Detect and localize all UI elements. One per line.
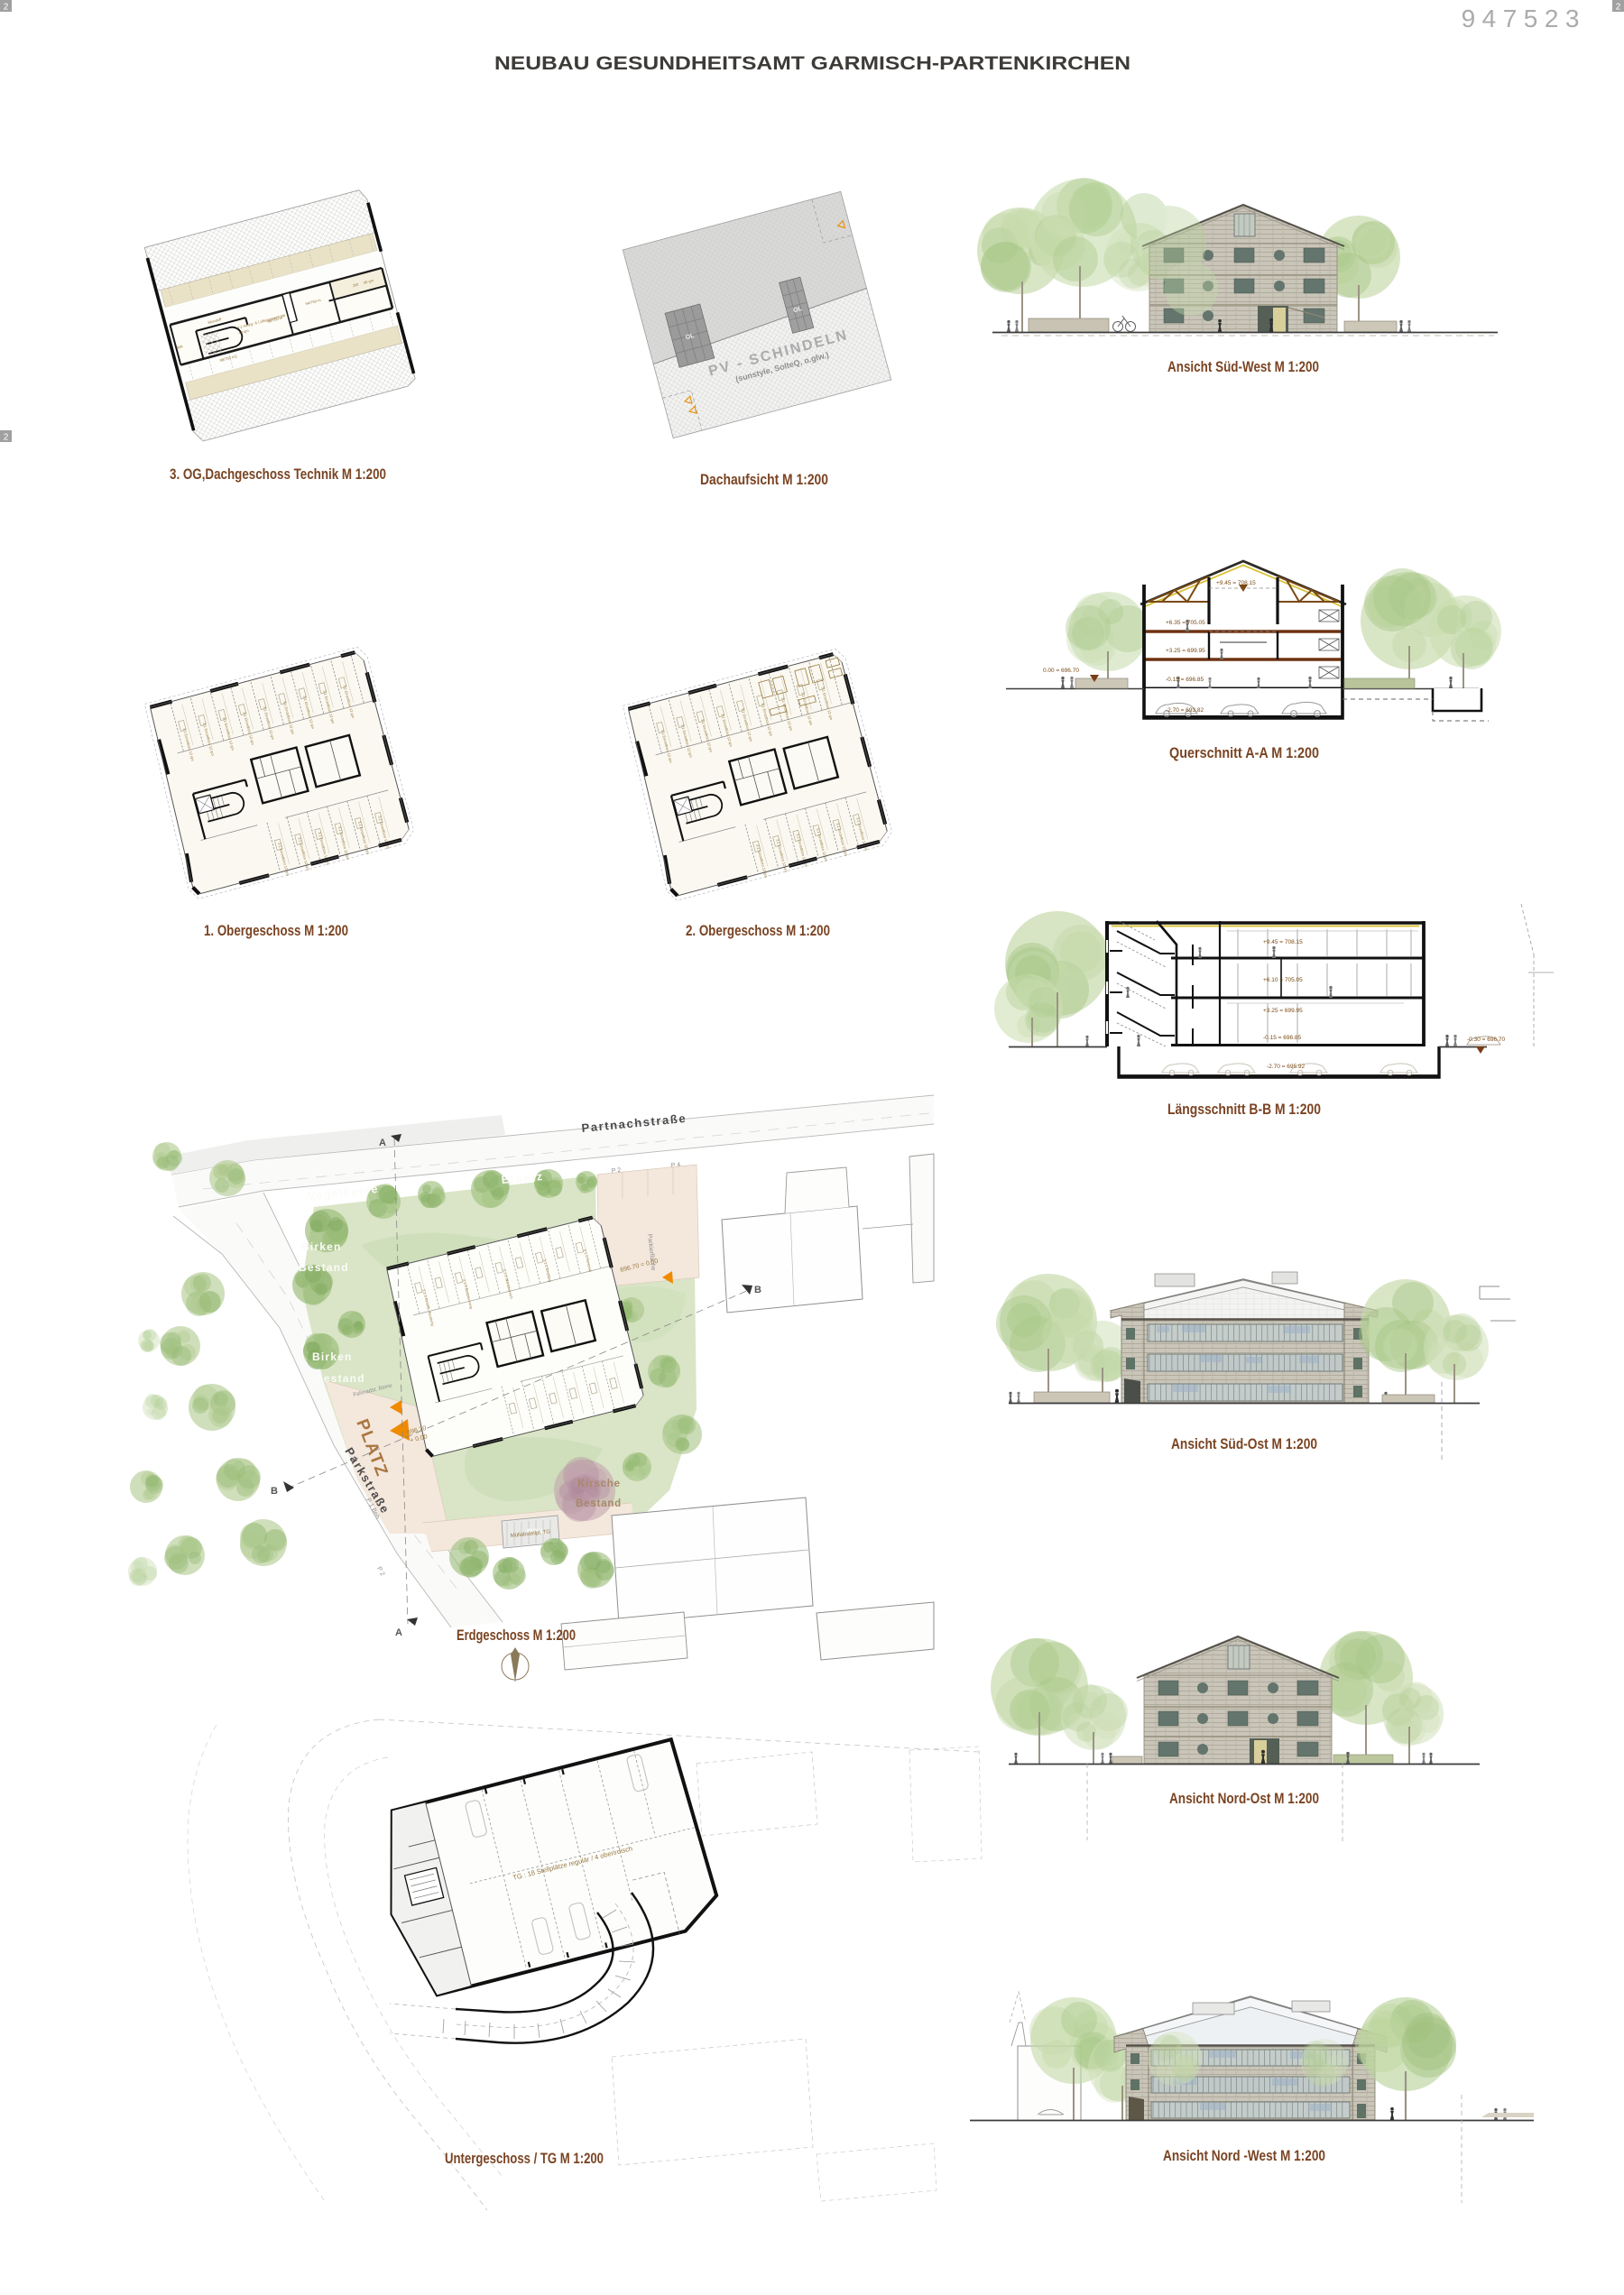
svg-text:1. Obergeschoss M 1:200: 1. Obergeschoss M 1:200 [204,923,348,939]
svg-text:Dachaufsicht M 1:200: Dachaufsicht M 1:200 [700,472,828,488]
svg-text:Ansicht Nord-Ost M 1:200: Ansicht Nord-Ost M 1:200 [1169,1791,1319,1807]
svg-text:Birken: Birken [301,1240,342,1253]
svg-text:-2.70 = 693.82: -2.70 = 693.82 [1166,707,1204,714]
svg-text:2: 2 [4,433,9,443]
svg-text:-0.30 = 696.70: -0.30 = 696.70 [1467,1037,1505,1043]
svg-text:+6.35 = 705.05: +6.35 = 705.05 [1166,620,1205,626]
svg-text:2: 2 [4,3,9,13]
svg-text:Bestand: Bestand [315,1372,365,1385]
svg-text:Bestand: Bestand [299,1261,349,1274]
svg-text:-0.15 = 696.85: -0.15 = 696.85 [1263,1035,1301,1041]
svg-text:0.00 = 696.70: 0.00 = 696.70 [1043,668,1079,674]
svg-text:Ansicht Süd-Ost M 1:200: Ansicht Süd-Ost M 1:200 [1171,1436,1317,1452]
svg-text:+3.25 = 699.95: +3.25 = 699.95 [1166,648,1205,654]
svg-text:Birken: Birken [312,1350,353,1363]
svg-text:P 2: P 2 [611,1167,621,1175]
svg-text:+9.45 = 708.15: +9.45 = 708.15 [1263,939,1303,945]
svg-text:947523: 947523 [1462,5,1586,32]
svg-text:Erdgeschoss M 1:200: Erdgeschoss M 1:200 [457,1627,576,1644]
svg-text:Längsschnitt B-B M 1:200: Längsschnitt B-B M 1:200 [1167,1101,1321,1118]
svg-text:A: A [395,1627,402,1638]
svg-text:Untergeschoss / TG M 1:200: Untergeschoss / TG M 1:200 [445,2151,604,2167]
svg-text:Kirsche: Kirsche [577,1479,621,1489]
svg-text:3. OG,Dachgeschoss Technik M 1: 3. OG,Dachgeschoss Technik M 1:200 [170,466,386,483]
svg-text:2. Obergeschoss M 1:200: 2. Obergeschoss M 1:200 [686,923,830,939]
svg-text:2: 2 [1616,3,1621,13]
svg-text:Querschnitt A-A M 1:200: Querschnitt A-A M 1:200 [1169,745,1319,761]
svg-text:-0.15 = 696.85: -0.15 = 696.85 [1166,677,1204,683]
svg-text:Bestand: Bestand [576,1498,622,1509]
svg-text:B: B [754,1285,761,1295]
svg-text:-2.70 = 695.92: -2.70 = 695.92 [1267,1064,1305,1070]
svg-text:Ansicht Süd-West M 1:200: Ansicht Süd-West M 1:200 [1167,359,1319,375]
svg-text:B: B [271,1486,278,1497]
svg-text:+3.25 = 699.95: +3.25 = 699.95 [1263,1008,1303,1014]
svg-text:A: A [379,1138,386,1148]
svg-text:+6.10 = 705.05: +6.10 = 705.05 [1263,977,1303,983]
svg-text:+9.45 = 708.15: +9.45 = 708.15 [1216,580,1256,586]
svg-text:NEUBAU GESUNDHEITSAMT GARMISCH: NEUBAU GESUNDHEITSAMT GARMISCH-PARTENKIR… [494,53,1130,74]
svg-text:P 4: P 4 [670,1162,680,1169]
svg-text:Ansicht Nord -West M 1:200: Ansicht Nord -West M 1:200 [1163,2148,1325,2164]
